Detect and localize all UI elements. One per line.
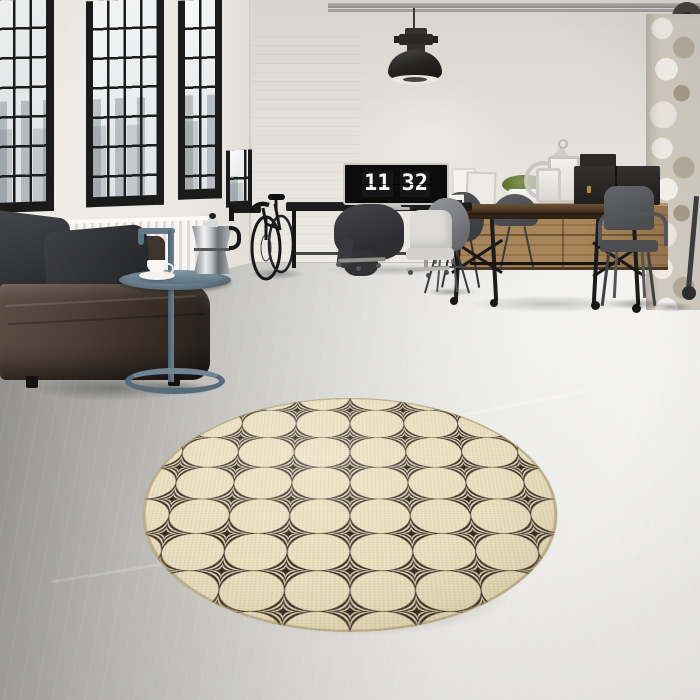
caster [356, 266, 361, 271]
round-rug [110, 397, 590, 633]
table-stretcher [470, 262, 620, 265]
ceiling-pipe [328, 3, 700, 8]
flip-clock-screen: 11 32 [343, 163, 449, 205]
desk-leg [292, 210, 296, 268]
moka-pot-waist [194, 248, 230, 251]
lantern-small [536, 168, 561, 203]
shadow [594, 296, 678, 312]
lamp-cable [413, 8, 415, 30]
side-table-pole [168, 230, 174, 382]
rug-pattern [110, 397, 590, 633]
window-1 [0, 0, 54, 213]
caster [376, 263, 381, 268]
office-chair-seat [406, 248, 454, 260]
cropped-chair-caster [682, 286, 696, 300]
caster [444, 270, 449, 275]
window-2 [86, 0, 164, 207]
flip-clock-split-line [359, 184, 433, 185]
caster [408, 270, 413, 275]
table-caster [490, 299, 498, 307]
moka-pot-base [194, 250, 230, 274]
metal-armchair-seat [600, 240, 658, 252]
sofa-leg [26, 376, 38, 388]
window-3 [178, 0, 222, 200]
side-table-base-ring [125, 368, 225, 394]
loft-room-photo: 11 32 [0, 0, 700, 700]
moka-pot-lid [206, 218, 218, 227]
lantern-ring [558, 139, 568, 149]
table-caster [450, 297, 458, 305]
lamp-bulb [403, 77, 427, 82]
lamp-inner-rim [391, 75, 439, 84]
sofa-seat [0, 284, 210, 380]
ceiling-pipe-2 [328, 9, 700, 12]
office-chair-back [410, 210, 452, 250]
caster [426, 273, 431, 278]
bike-rack-bracket [229, 206, 234, 221]
moka-pot-knob [209, 213, 216, 219]
caster [336, 262, 341, 267]
